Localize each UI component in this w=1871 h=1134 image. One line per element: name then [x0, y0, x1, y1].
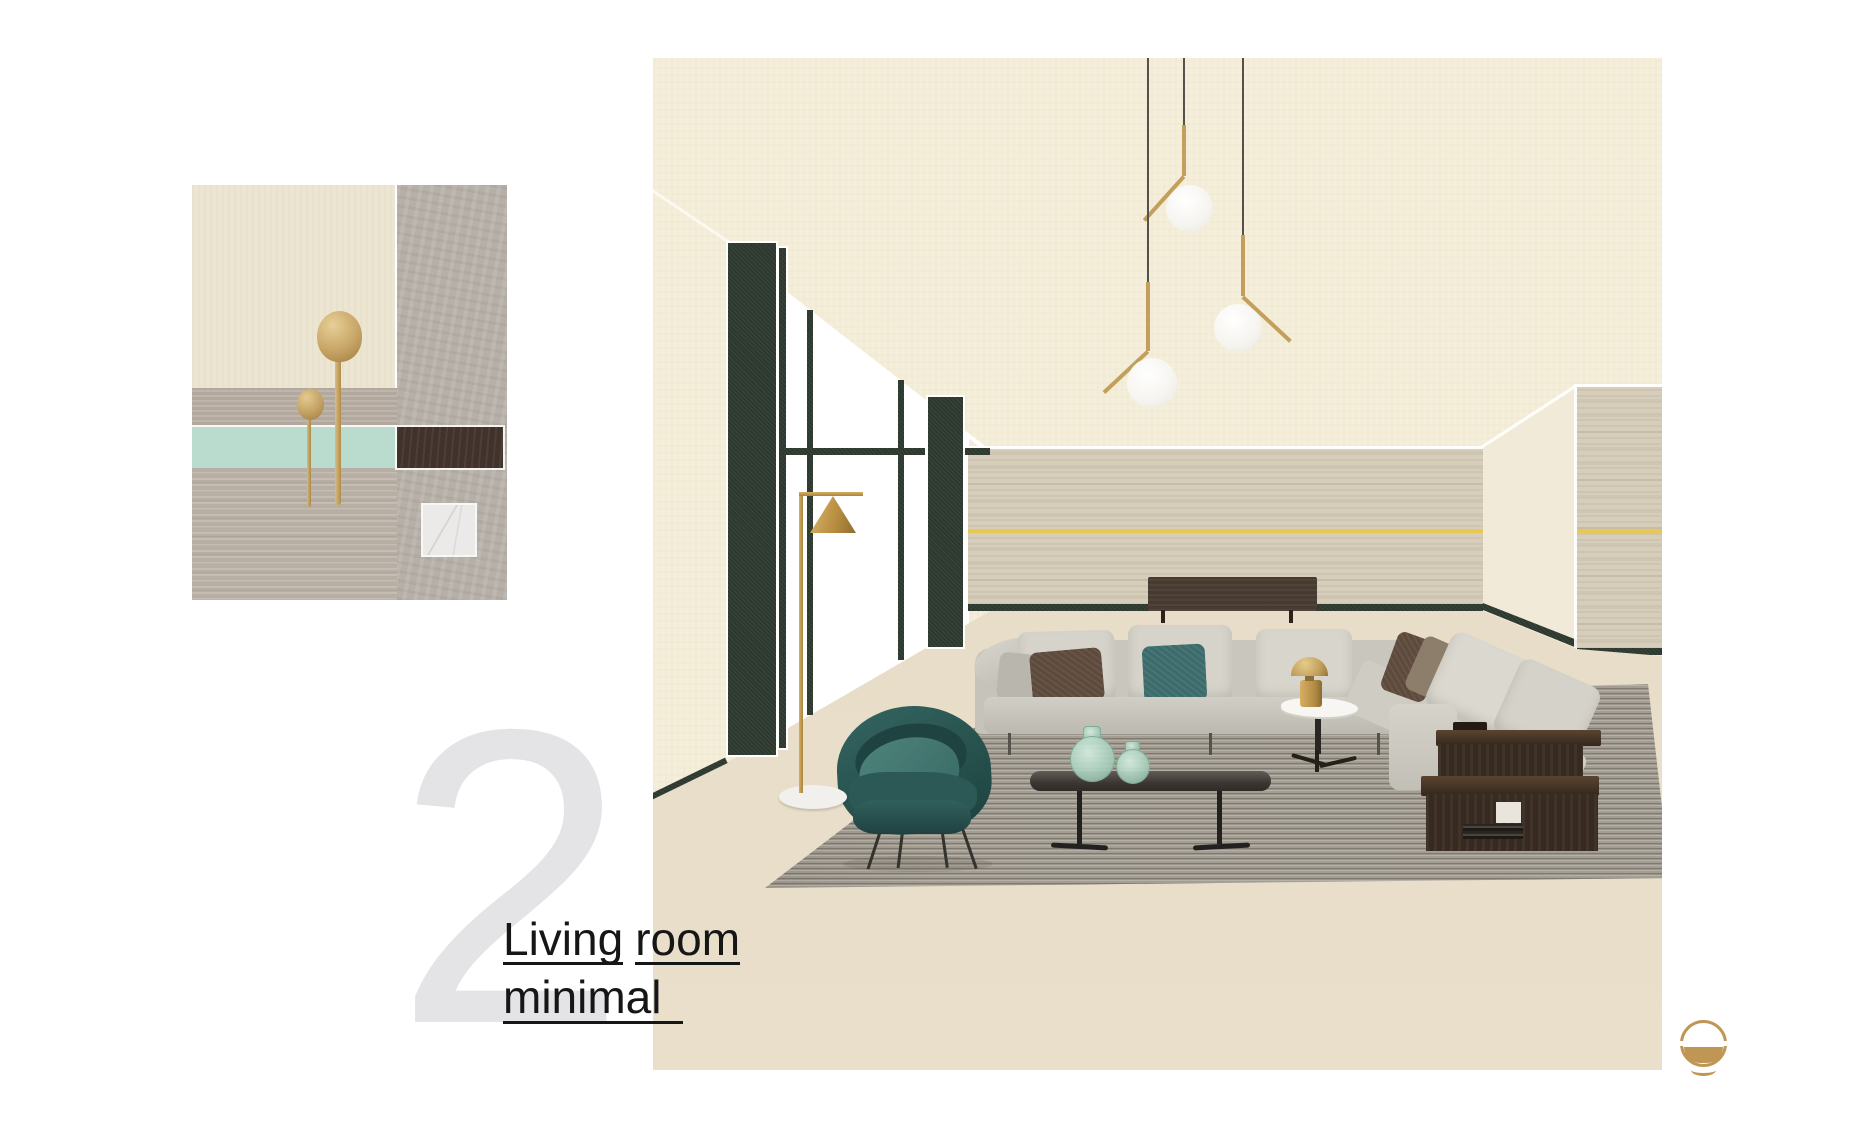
swatch-stone-band — [192, 388, 397, 427]
pendant-wire-2 — [1147, 58, 1149, 282]
floor-lamp-base — [779, 785, 847, 809]
green-pillar-side — [779, 248, 786, 748]
sofa-leg — [1377, 733, 1380, 755]
window-mullion-horizontal-2 — [963, 448, 990, 455]
pendant-globe-3 — [1214, 304, 1262, 352]
swatch-dark-walnut — [397, 427, 503, 468]
swatch-carrara-marble — [423, 505, 475, 555]
coffee-table-top — [1030, 771, 1271, 791]
living-room-rendering — [653, 58, 1662, 1070]
slide-title: Livingroom minimal — [503, 916, 740, 1024]
sideboard-leg — [1161, 610, 1165, 623]
brass-spoon-bowl-large — [317, 311, 362, 362]
brass-spoon-bowl-small — [297, 389, 324, 420]
swatch-mint-lacquer — [192, 427, 397, 468]
floor-lamp-arm — [799, 492, 863, 496]
coffee-table-leg — [1077, 791, 1082, 844]
brass-spoon-handle-small — [307, 417, 311, 507]
title-word-minimal: minimal — [503, 974, 683, 1024]
throw-pillow-teal — [1142, 643, 1208, 703]
swatch-plaster-cream — [192, 185, 397, 388]
sideboard-leg — [1289, 610, 1293, 623]
wall-sideboard — [1148, 577, 1317, 611]
pendant-wire-1 — [1183, 58, 1185, 125]
title-word-room: room — [635, 916, 740, 965]
green-pillar-small — [928, 397, 963, 647]
rug-weave — [653, 58, 1662, 1070]
logo-band — [1677, 1041, 1730, 1046]
pendant-globe-2 — [1127, 358, 1177, 408]
green-pillar-large — [728, 243, 776, 755]
coffee-table-leg — [1217, 791, 1222, 844]
brand-logo — [1680, 1020, 1727, 1067]
pendant-wire-3 — [1242, 58, 1244, 235]
slide: 2 — [0, 0, 1871, 1134]
title-line-2: minimal — [503, 974, 740, 1024]
brass-spoon-handle-large — [335, 357, 341, 505]
glass-vase-large — [1070, 736, 1115, 782]
material-moodboard — [192, 185, 507, 600]
pendant-globe-1 — [1166, 185, 1213, 232]
pendant-rod-3 — [1241, 235, 1245, 296]
table-lamp-base — [1300, 680, 1322, 707]
shelf-unit-cubby — [1496, 802, 1521, 823]
page-number-watermark: 2 — [394, 668, 618, 1088]
window-mullion-vertical-2 — [898, 380, 904, 660]
swatch-travertine — [192, 468, 397, 600]
sofa-leg — [1008, 733, 1011, 755]
side-table-foot — [1315, 750, 1319, 772]
stacked-books — [1463, 824, 1523, 839]
armchair-front — [853, 800, 971, 834]
title-line-1: Livingroom — [503, 916, 740, 965]
glass-vase-small — [1116, 749, 1150, 784]
area-rug — [653, 58, 1662, 1070]
pendant-rod-2 — [1146, 282, 1150, 351]
window-mullion-horizontal-1 — [782, 448, 925, 455]
window-mullion-vertical-1 — [807, 310, 813, 715]
shelf-unit-lower-slab — [1421, 776, 1599, 796]
title-word-living: Living — [503, 916, 623, 965]
sofa-leg — [1209, 733, 1212, 755]
floor-lamp-pole — [799, 495, 803, 793]
side-table-stem — [1315, 714, 1321, 754]
logo-dash — [1691, 1064, 1716, 1076]
pendant-rod-1 — [1182, 125, 1186, 176]
